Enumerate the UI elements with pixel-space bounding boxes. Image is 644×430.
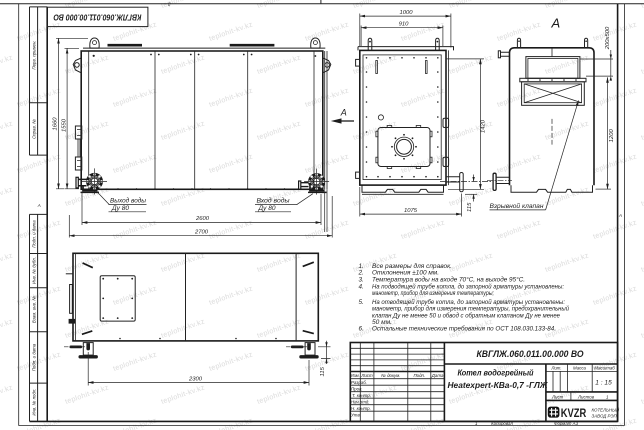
- svg-text:Котел водогрейный: Котел водогрейный: [458, 367, 534, 377]
- svg-text:А: А: [551, 16, 561, 31]
- svg-text:teplohit-kv.kz: teplohit-kv.kz: [352, 52, 398, 75]
- svg-text:teplohit-kv.kz: teplohit-kv.kz: [16, 349, 62, 372]
- svg-text:teplohit-kv.kz: teplohit-kv.kz: [592, 151, 638, 174]
- svg-text:teplohit-kv.kz: teplohit-kv.kz: [208, 283, 254, 306]
- svg-text:teplohit-kv.kz: teplohit-kv.kz: [16, 217, 62, 240]
- svg-text:Остальные технические требован: Остальные технические требования по ОСТ …: [372, 325, 556, 333]
- svg-text:teplohit-kv.kz: teplohit-kv.kz: [640, 382, 644, 405]
- svg-text:Выход воды: Выход воды: [110, 197, 146, 205]
- svg-text:teplohit-kv.kz: teplohit-kv.kz: [160, 118, 206, 141]
- svg-text:teplohit-kv.kz: teplohit-kv.kz: [0, 52, 14, 75]
- svg-text:Вход воды: Вход воды: [257, 197, 290, 205]
- svg-text:teplohit-kv.kz: teplohit-kv.kz: [160, 0, 206, 10]
- svg-text:Справ. №: Справ. №: [31, 119, 36, 139]
- svg-text:2700: 2700: [194, 229, 209, 235]
- svg-text:teplohit-kv.kz: teplohit-kv.kz: [640, 0, 644, 10]
- svg-text:teplohit-kv.kz: teplohit-kv.kz: [64, 184, 110, 207]
- svg-text:Heatexpert-КВа-0,7 -ГЛЖ: Heatexpert-КВа-0,7 -ГЛЖ: [448, 380, 549, 390]
- svg-text:teplohit-kv.kz: teplohit-kv.kz: [640, 250, 644, 273]
- svg-text:teplohit-kv.kz: teplohit-kv.kz: [16, 283, 62, 306]
- svg-text:teplohit-kv.kz: teplohit-kv.kz: [544, 52, 590, 75]
- svg-text:teplohit-kv.kz: teplohit-kv.kz: [592, 217, 638, 240]
- svg-text:teplohit-kv.kz: teplohit-kv.kz: [448, 250, 494, 273]
- svg-text:Взам. инв. №: Взам. инв. №: [31, 296, 36, 323]
- svg-text:teplohit-kv.kz: teplohit-kv.kz: [0, 118, 14, 141]
- svg-text:teplohit-kv.kz: teplohit-kv.kz: [592, 19, 638, 42]
- svg-text:1: 1: [606, 394, 609, 399]
- svg-text:Масса: Масса: [573, 366, 587, 371]
- svg-text:Все размеры для справок.: Все размеры для справок.: [372, 262, 452, 270]
- svg-text:teplohit-kv.kz: teplohit-kv.kz: [544, 0, 590, 10]
- svg-text:teplohit-kv.kz: teplohit-kv.kz: [640, 118, 644, 141]
- svg-text:Подп.: Подп.: [413, 373, 425, 378]
- svg-text:Взрывной клапан: Взрывной клапан: [490, 202, 544, 210]
- svg-text:teplohit-kv.kz: teplohit-kv.kz: [208, 415, 254, 430]
- svg-text:teplohit-kv.kz: teplohit-kv.kz: [592, 85, 638, 108]
- svg-text:1 : 15: 1 : 15: [595, 380, 612, 387]
- svg-text:Температура воды на входе 70°С: Температура воды на входе 70°С, на выход…: [372, 275, 525, 283]
- svg-text:1660: 1660: [52, 117, 58, 131]
- svg-text:клапан Ду не менее 50 и обвод: клапан Ду не менее 50 и обвод с обратным…: [372, 311, 560, 319]
- svg-text:Пров.: Пров.: [351, 386, 363, 391]
- svg-text:teplohit-kv.kz: teplohit-kv.kz: [448, 118, 494, 141]
- svg-text:Лист: Лист: [551, 394, 564, 399]
- svg-text:teplohit-kv.kz: teplohit-kv.kz: [544, 250, 590, 273]
- svg-text:1075: 1075: [404, 208, 418, 214]
- svg-text:teplohit-kv.kz: teplohit-kv.kz: [16, 415, 62, 430]
- svg-text:teplohit-kv.kz: teplohit-kv.kz: [0, 250, 14, 273]
- svg-text:teplohit-kv.kz: teplohit-kv.kz: [112, 151, 158, 174]
- svg-text:teplohit-kv.kz: teplohit-kv.kz: [304, 415, 350, 430]
- svg-text:teplohit-kv.kz: teplohit-kv.kz: [208, 349, 254, 372]
- svg-text:KVZR: KVZR: [561, 406, 587, 420]
- svg-text:teplohit-kv.kz: teplohit-kv.kz: [112, 85, 158, 108]
- svg-text:teplohit-kv.kz: teplohit-kv.kz: [448, 52, 494, 75]
- svg-text:Листов: Листов: [577, 394, 595, 399]
- svg-text:Утв.: Утв.: [351, 413, 361, 418]
- svg-text:teplohit-kv.kz: teplohit-kv.kz: [496, 19, 542, 42]
- svg-text:teplohit-kv.kz: teplohit-kv.kz: [0, 382, 14, 405]
- svg-text:Изм.: Изм.: [351, 373, 360, 378]
- svg-text:teplohit-kv.kz: teplohit-kv.kz: [256, 0, 302, 10]
- svg-text:А: А: [340, 108, 347, 118]
- svg-text:teplohit-kv.kz: teplohit-kv.kz: [640, 316, 644, 339]
- svg-text:2300: 2300: [188, 376, 203, 382]
- svg-text:На подводящей трубе котла, до: На подводящей трубе котла, до запорной а…: [372, 282, 564, 290]
- svg-text:teplohit-kv.kz: teplohit-kv.kz: [352, 118, 398, 141]
- svg-text:A: A: [37, 203, 41, 208]
- svg-text:teplohit-kv.kz: teplohit-kv.kz: [304, 283, 350, 306]
- svg-text:115: 115: [467, 202, 473, 212]
- svg-text:teplohit-kv.kz: teplohit-kv.kz: [256, 118, 302, 141]
- svg-text:teplohit-kv.kz: teplohit-kv.kz: [640, 52, 644, 75]
- svg-text:Ду 80: Ду 80: [111, 205, 129, 212]
- svg-text:КВГЛЖ.060.011.00.000 ВО: КВГЛЖ.060.011.00.000 ВО: [477, 348, 585, 359]
- svg-text:teplohit-kv.kz: teplohit-kv.kz: [400, 151, 446, 174]
- svg-text:teplohit-kv.kz: teplohit-kv.kz: [448, 0, 494, 10]
- svg-text:115: 115: [320, 366, 326, 376]
- svg-text:teplohit-kv.kz: teplohit-kv.kz: [112, 415, 158, 430]
- svg-text:Копировал: Копировал: [491, 421, 513, 426]
- svg-text:teplohit-kv.kz: teplohit-kv.kz: [496, 151, 542, 174]
- svg-text:teplohit-kv.kz: teplohit-kv.kz: [304, 19, 350, 42]
- svg-text:teplohit-kv.kz: teplohit-kv.kz: [208, 85, 254, 108]
- svg-text:teplohit-kv.kz: teplohit-kv.kz: [0, 184, 14, 207]
- svg-text:Ду 80: Ду 80: [257, 205, 275, 212]
- svg-text:910: 910: [399, 22, 410, 28]
- svg-text:5.: 5.: [359, 299, 364, 306]
- svg-text:1550: 1550: [61, 118, 67, 132]
- svg-text:teplohit-kv.kz: teplohit-kv.kz: [496, 217, 542, 240]
- svg-text:teplohit-kv.kz: teplohit-kv.kz: [640, 184, 644, 207]
- svg-text:Лист: Лист: [360, 373, 373, 378]
- svg-text:teplohit-kv.kz: teplohit-kv.kz: [400, 217, 446, 240]
- svg-text:1000: 1000: [399, 10, 413, 16]
- svg-text:teplohit-kv.kz: teplohit-kv.kz: [400, 415, 446, 430]
- svg-text:Инв. № подл.: Инв. № подл.: [31, 388, 36, 415]
- svg-text:4.: 4.: [359, 283, 364, 290]
- svg-text:1420: 1420: [480, 119, 486, 133]
- svg-text:teplohit-kv.kz: teplohit-kv.kz: [400, 85, 446, 108]
- svg-text:teplohit-kv.kz: teplohit-kv.kz: [352, 184, 398, 207]
- svg-text:teplohit-kv.kz: teplohit-kv.kz: [112, 217, 158, 240]
- svg-text:КОТЕЛЬНЫЙ: КОТЕЛЬНЫЙ: [592, 407, 620, 412]
- svg-text:teplohit-kv.kz: teplohit-kv.kz: [160, 184, 206, 207]
- svg-text:ЗАВОД РЭП: ЗАВОД РЭП: [592, 413, 618, 418]
- svg-text:teplohit-kv.kz: teplohit-kv.kz: [64, 0, 110, 10]
- svg-text:КВГЛЖ.060.011.00.000 ВО: КВГЛЖ.060.011.00.000 ВО: [53, 13, 141, 23]
- svg-text:Подп. и дата: Подп. и дата: [31, 220, 36, 248]
- svg-text:Подп. и дата: Подп. и дата: [31, 343, 36, 371]
- svg-text:teplohit-kv.kz: teplohit-kv.kz: [64, 118, 110, 141]
- svg-text:Инв. № дубл.: Инв. № дубл.: [31, 257, 36, 284]
- svg-text:teplohit-kv.kz: teplohit-kv.kz: [0, 0, 14, 10]
- svg-text:teplohit-kv.kz: teplohit-kv.kz: [160, 382, 206, 405]
- svg-text:Перв. примен.: Перв. примен.: [31, 40, 36, 69]
- svg-text:teplohit-kv.kz: teplohit-kv.kz: [112, 349, 158, 372]
- svg-text:Н. контр.: Н. контр.: [351, 406, 371, 411]
- svg-text:teplohit-kv.kz: teplohit-kv.kz: [16, 85, 62, 108]
- svg-text:200х500: 200х500: [605, 26, 611, 50]
- svg-text:teplohit-kv.kz: teplohit-kv.kz: [160, 52, 206, 75]
- svg-text:teplohit-kv.kz: teplohit-kv.kz: [0, 316, 14, 339]
- svg-text:teplohit-kv.kz: teplohit-kv.kz: [544, 184, 590, 207]
- svg-text:teplohit-kv.kz: teplohit-kv.kz: [64, 382, 110, 405]
- svg-text:teplohit-kv.kz: teplohit-kv.kz: [160, 316, 206, 339]
- svg-text:2600: 2600: [195, 216, 210, 222]
- svg-text:манометр, прибор для измерения: манометр, прибор для измерения температу…: [372, 289, 494, 297]
- svg-text:Нач.отд.: Нач.отд.: [351, 399, 370, 404]
- svg-text:teplohit-kv.kz: teplohit-kv.kz: [352, 0, 398, 10]
- svg-text:Масштаб: Масштаб: [594, 366, 615, 371]
- svg-text:teplohit-kv.kz: teplohit-kv.kz: [256, 52, 302, 75]
- svg-text:1200: 1200: [609, 129, 615, 143]
- svg-text:Лит.: Лит.: [550, 366, 561, 371]
- svg-text:Дата: Дата: [431, 373, 444, 378]
- svg-text:A: A: [618, 213, 622, 218]
- svg-text:№ докум.: № докум.: [381, 373, 400, 378]
- svg-text:teplohit-kv.kz: teplohit-kv.kz: [64, 52, 110, 75]
- svg-text:teplohit-kv.kz: teplohit-kv.kz: [400, 349, 446, 372]
- svg-text:teplohit-kv.kz: teplohit-kv.kz: [208, 151, 254, 174]
- svg-text:teplohit-kv.kz: teplohit-kv.kz: [256, 382, 302, 405]
- svg-text:teplohit-kv.kz: teplohit-kv.kz: [208, 19, 254, 42]
- svg-text:2: 2: [167, 1, 171, 6]
- svg-text:teplohit-kv.kz: teplohit-kv.kz: [592, 283, 638, 306]
- svg-text:teplohit-kv.kz: teplohit-kv.kz: [208, 217, 254, 240]
- svg-text:Формат А3: Формат А3: [554, 421, 579, 426]
- svg-text:teplohit-kv.kz: teplohit-kv.kz: [256, 316, 302, 339]
- svg-text:Разраб.: Разраб.: [351, 380, 367, 385]
- svg-text:Т. контр.: Т. контр.: [352, 393, 371, 398]
- svg-text:6.: 6.: [359, 326, 364, 333]
